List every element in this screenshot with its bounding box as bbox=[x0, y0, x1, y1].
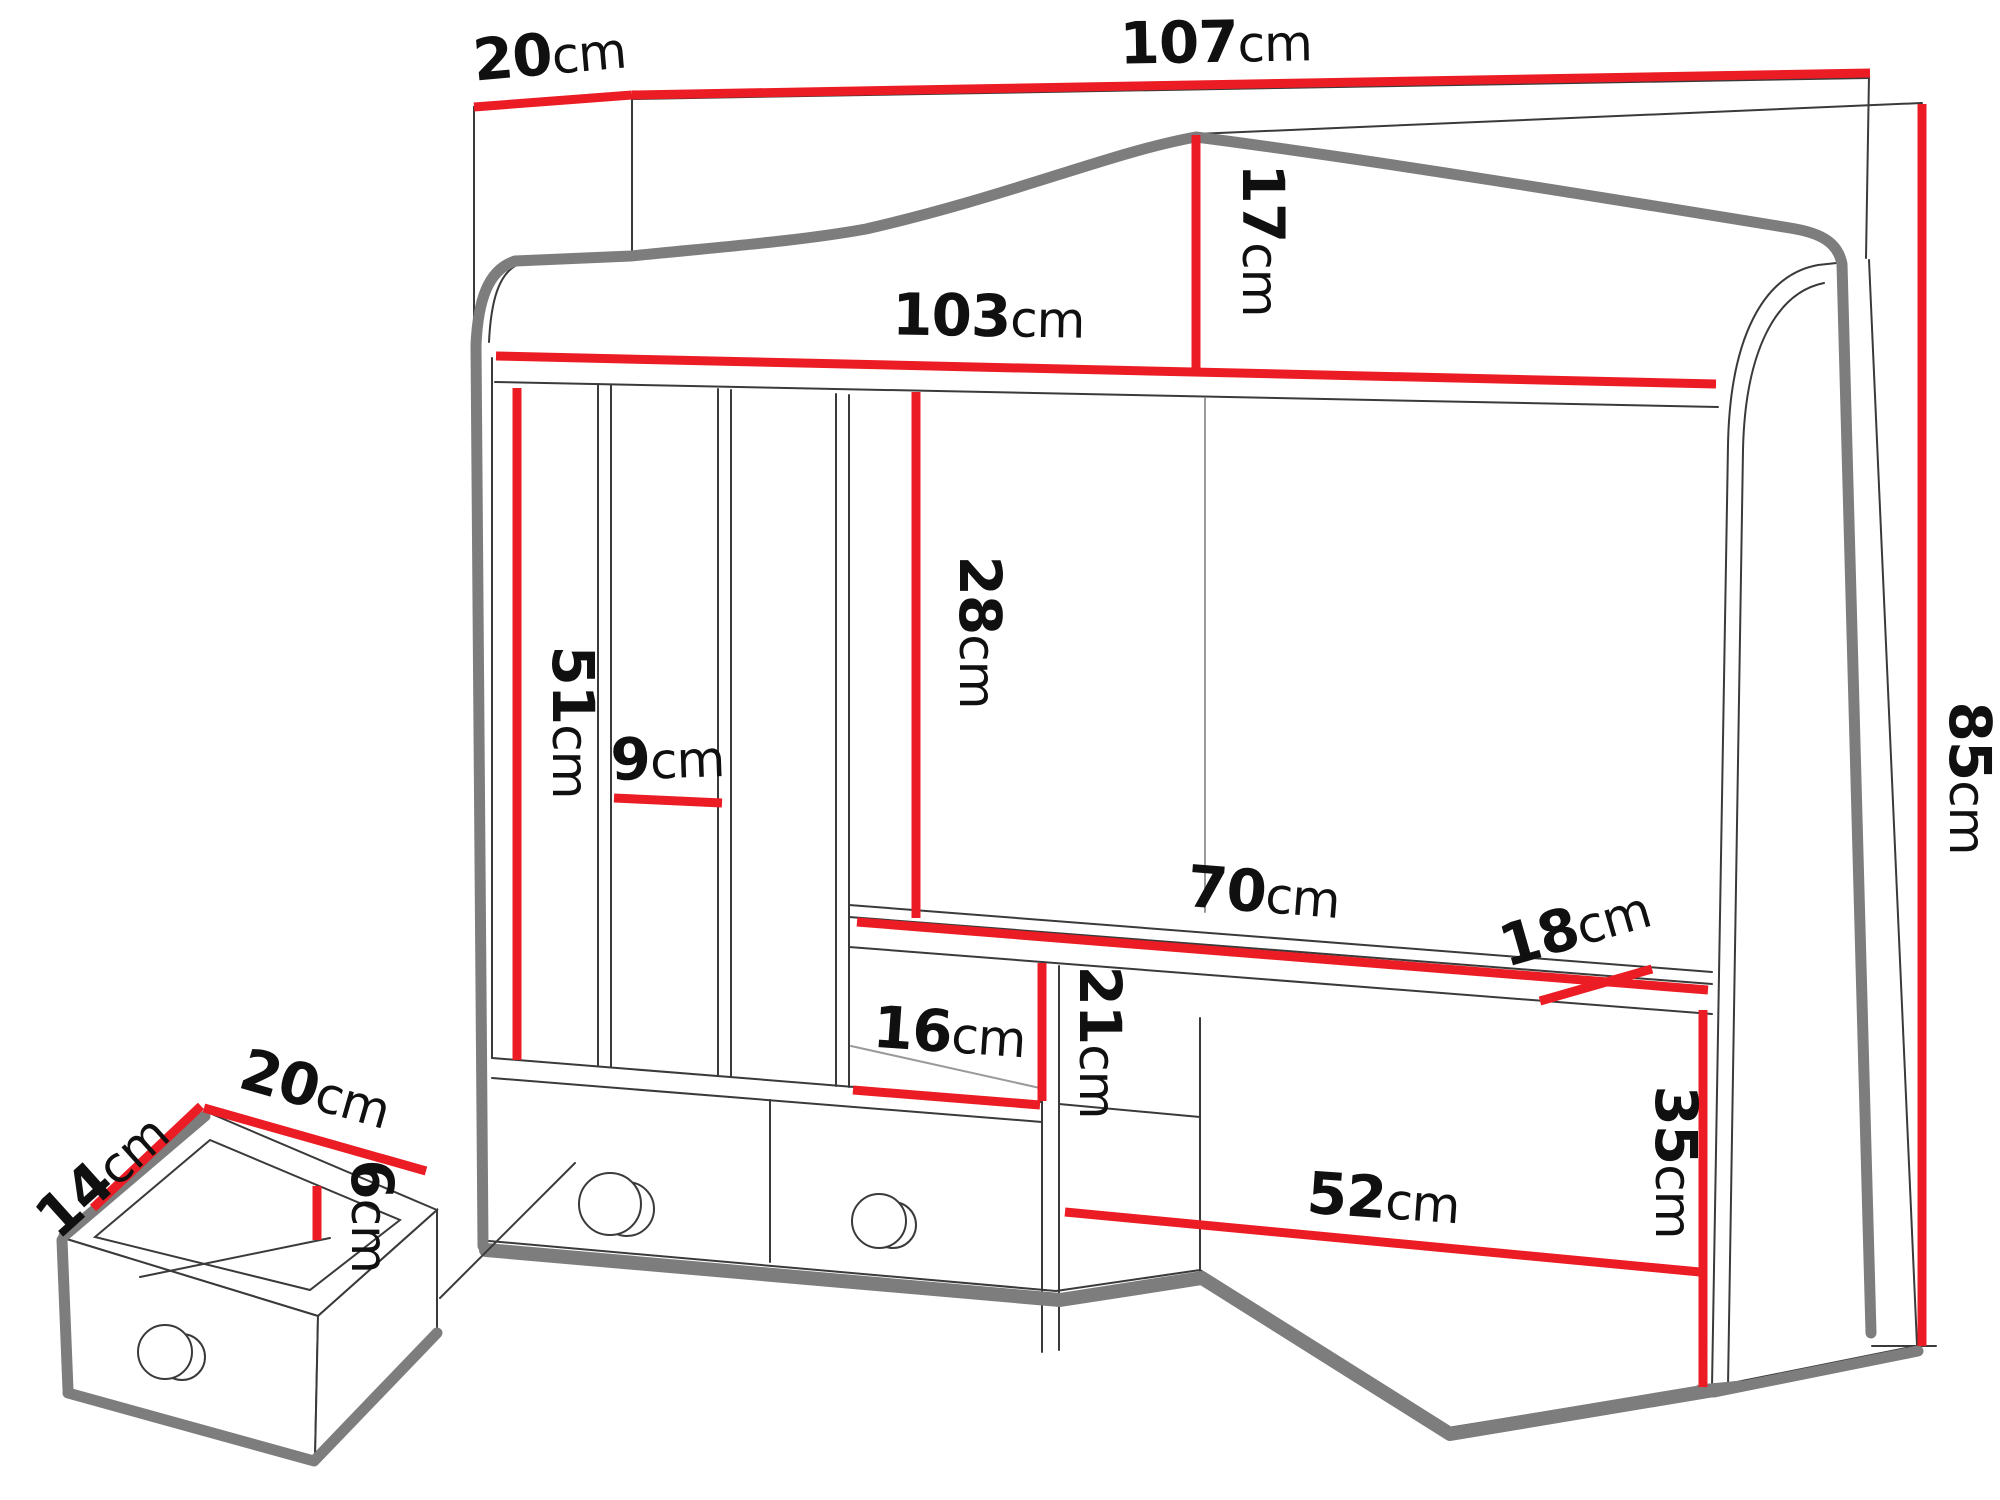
dim-label-inner-width: 103cm bbox=[892, 280, 1085, 351]
dim-label-opening-height: 35cm bbox=[1642, 1086, 1710, 1239]
dim-label-slot-width: 9cm bbox=[609, 722, 725, 794]
right-panel-front-edge-inner bbox=[1728, 283, 1824, 1386]
dim-label-ledge-depth: 16cm bbox=[871, 993, 1028, 1072]
dim-line-inner-width-103 bbox=[496, 356, 1716, 384]
drawer-knobs bbox=[579, 1173, 916, 1248]
top-shelf-front-edge bbox=[495, 382, 1718, 407]
dim-label-total-height: 85cm bbox=[1936, 702, 2000, 855]
dim-label-slot-height: 51cm bbox=[539, 646, 607, 799]
crown-inner-line bbox=[489, 259, 630, 342]
dim-label-shelf-width: 70cm bbox=[1185, 852, 1343, 932]
dim-label-shelf-drop: 28cm bbox=[946, 556, 1014, 709]
dim-label-crown-height: 17cm bbox=[1229, 164, 1297, 317]
back-right-corner-edge bbox=[1866, 76, 1869, 258]
dim-line-top-depth-20 bbox=[474, 95, 632, 107]
right-panel-right-edge bbox=[1869, 260, 1917, 1345]
dim-label-top-depth: 20cm bbox=[470, 14, 628, 95]
bottom-shadow-left bbox=[486, 1250, 1202, 1300]
bottom-shadow-right bbox=[1202, 1278, 1714, 1434]
left-knob-icon bbox=[579, 1173, 641, 1235]
divider-3 bbox=[836, 394, 849, 1087]
furniture-dimension-diagram: 20cm 107cm 17cm 103cm 51cm 9cm 28cm 70cm… bbox=[0, 0, 2000, 1500]
height-extension-top bbox=[1196, 103, 1922, 134]
right-knob-icon bbox=[852, 1194, 906, 1248]
dim-label-gap-height: 21cm bbox=[1066, 966, 1134, 1119]
drawer-sketch-left-edge-shadow bbox=[62, 1240, 68, 1390]
dim-label-top-width: 107cm bbox=[1119, 6, 1312, 77]
right-panel-front-edge-outer bbox=[1712, 262, 1846, 1387]
dim-label-drawer-height: 6cm bbox=[338, 1159, 406, 1273]
dim-label-opening-width: 52cm bbox=[1305, 1159, 1462, 1238]
sketch-knob-icon bbox=[138, 1325, 192, 1379]
dim-label-shelf-depth: 18cm bbox=[1492, 873, 1658, 981]
dim-line-ledge-depth-16 bbox=[853, 1090, 1040, 1105]
dim-line-slot-width-9 bbox=[614, 798, 722, 803]
drawer-leader-line bbox=[440, 1163, 575, 1298]
diagram-page: 20cm 107cm 17cm 103cm 51cm 9cm 28cm 70cm… bbox=[0, 0, 2000, 1500]
dim-line-top-width-107 bbox=[632, 73, 1870, 95]
